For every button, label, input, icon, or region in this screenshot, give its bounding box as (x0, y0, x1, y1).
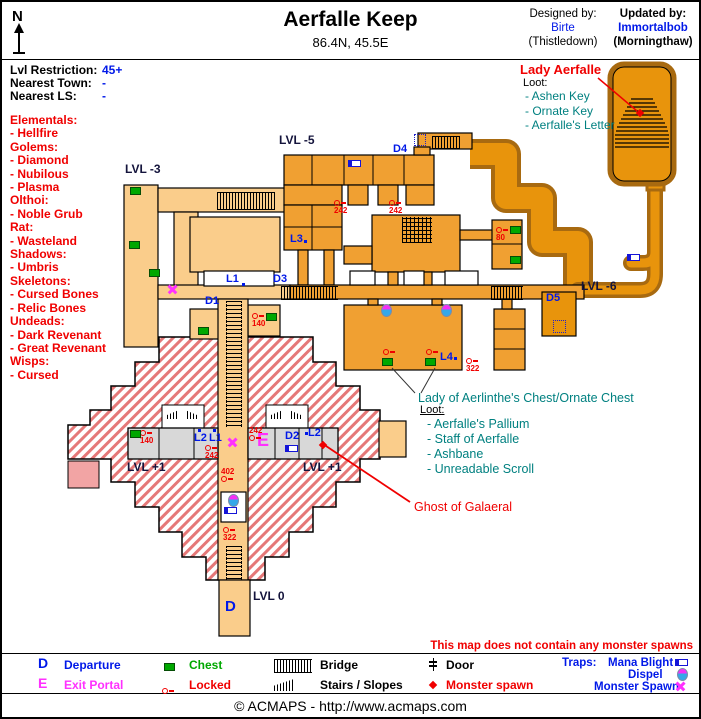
legend-locked-label: Locked (189, 678, 231, 692)
lady-loot-list: - Ashen Key - Ornate Key - Aerfalle's Le… (525, 89, 615, 133)
dispel-trap-icon (228, 494, 239, 507)
bridge-east-icon (491, 286, 523, 300)
legend-departure-key: D (38, 655, 48, 671)
chest-icon (266, 313, 277, 321)
main-corridor-west (158, 285, 290, 299)
lock-322-shaft: 322 (223, 526, 236, 541)
hall-east-block (379, 421, 406, 457)
copyright-footer[interactable]: © ACMAPS - http://www.acmaps.com (234, 698, 467, 714)
stub-c (388, 272, 398, 285)
mana-blight-trap-icon (348, 160, 361, 167)
east-room-column (494, 309, 525, 370)
marker-l3[interactable]: L3 (290, 233, 303, 245)
stairs-shaft-upper-icon (226, 301, 242, 427)
lvl5-row2-b (348, 185, 368, 205)
key-icon (162, 687, 174, 695)
lock-ornate-chest-a (383, 348, 395, 356)
key-icon (389, 199, 401, 207)
key-icon (252, 312, 264, 320)
label-lvl-1-left: LVL +1 (127, 460, 166, 474)
monster-spawn-trap-icon (676, 682, 685, 691)
lady-aerfalle-title: Lady Aerfalle (520, 62, 601, 77)
label-lvl-6: LVL -6 (581, 279, 617, 293)
lvl6-corridor-inner (470, 154, 578, 294)
legend-stairs-label: Stairs / Slopes (320, 678, 403, 692)
lvl3-strip-room (124, 185, 158, 347)
bridge-d4-icon (432, 136, 460, 149)
dispel-trap-icon (677, 668, 688, 681)
d4-pad-icon (414, 134, 426, 146)
label-lvl-5: LVL -5 (279, 133, 315, 147)
chest-icon (130, 430, 141, 438)
legend-dispel-label: Dispel (628, 669, 663, 681)
key-icon (140, 429, 152, 437)
marker-d1[interactable]: D1 (205, 295, 219, 307)
legend-top-border (2, 653, 699, 654)
lvl5-stub-b (324, 250, 334, 285)
dispel-trap-icon (441, 304, 452, 317)
lady-loot-label: Loot: (523, 77, 547, 89)
acmaps-page: N Aerfalle Keep 86.4N, 45.5E Designed by… (0, 0, 701, 719)
white-room-b (404, 271, 424, 285)
marker-d3[interactable]: D3 (273, 273, 287, 285)
lever-dot (242, 283, 245, 286)
chest-icon (510, 226, 521, 234)
lvl5-stub-a (298, 250, 308, 285)
d4-stub (414, 147, 430, 155)
marker-hall-l2[interactable]: L2 (194, 432, 207, 444)
lever-dot (213, 429, 216, 432)
stairs-shaft-lower-icon (226, 546, 242, 580)
key-icon (466, 357, 478, 365)
legend-exit-key: E (38, 675, 47, 691)
label-lvl-1-right: LVL +1 (303, 460, 342, 474)
chest-icon (129, 241, 140, 249)
l1-room (204, 271, 274, 286)
bridge-mid-icon (281, 286, 338, 300)
marker-l1[interactable]: L1 (226, 273, 239, 285)
stub-e (368, 299, 378, 305)
stub-g (502, 299, 512, 309)
stub-f (432, 299, 442, 305)
key-icon (334, 199, 346, 207)
white-room-c (445, 271, 478, 285)
lvl5-row2-d (406, 185, 434, 205)
lock-242-hall-bottom: 242 (205, 444, 218, 459)
key-icon (496, 226, 508, 234)
lady-aerfalle-room (610, 64, 674, 184)
legend-bottom-border (2, 693, 699, 694)
lock-242-hall-top: 242 (249, 427, 262, 442)
mana-blight-trap-icon (675, 659, 688, 666)
marker-d2[interactable]: D2 (285, 430, 299, 442)
monster-spawn-trap-icon (228, 438, 237, 447)
marker-hall-l1[interactable]: L1 (209, 432, 222, 444)
monster-spawn-trap-icon (168, 285, 177, 294)
key-icon (205, 444, 217, 452)
lever-dot (198, 429, 201, 432)
pink-annex-room (68, 461, 99, 488)
chest-icon (510, 256, 521, 264)
lock-80: 80 (496, 226, 508, 241)
ghost-of-galaeral-label: Ghost of Galaeral (414, 500, 512, 514)
mana-blight-trap-icon (627, 254, 640, 261)
key-icon (426, 348, 438, 356)
ornate-chest-title: Lady of Aerlinthe's Chest/Ornate Chest (418, 391, 634, 405)
marker-l4[interactable]: L4 (440, 351, 453, 363)
marker-d5[interactable]: D5 (546, 292, 560, 304)
lever-dot (304, 240, 307, 243)
legend-door-label: Door (446, 658, 474, 672)
chest-icon (198, 327, 209, 335)
lock-402: 402 (221, 468, 234, 483)
chest-loot-label: Loot: (420, 404, 444, 416)
bridge-icon (274, 659, 312, 673)
portcullis-icon (402, 217, 432, 243)
bridge-west-icon (217, 192, 275, 210)
lvl3-big-room (190, 217, 280, 272)
lock-322-east: 322 (466, 357, 479, 372)
legend-traps-label: Traps: (562, 657, 597, 669)
lever-dot (305, 432, 308, 435)
d5-pad-icon (553, 320, 566, 333)
no-spawns-note: This map does not contain any monster sp… (430, 640, 693, 652)
legend-mana-blight-label: Mana Blight (608, 657, 673, 669)
key-icon (249, 434, 261, 442)
marker-departure[interactable]: D (225, 598, 236, 615)
lock-242-a: 242 (334, 199, 347, 214)
white-room-a (350, 271, 375, 285)
key-icon (383, 348, 395, 356)
mana-blight-trap-icon (224, 507, 237, 514)
lock-ornate-chest-b (426, 348, 438, 356)
key-icon (223, 526, 235, 534)
legend-departure-label: Departure (64, 658, 121, 672)
marker-d4[interactable]: D4 (393, 143, 407, 155)
chest-loot-list: - Aerfalle's Pallium - Staff of Aerfalle… (427, 417, 534, 477)
chest-icon (425, 358, 436, 366)
door-icon (428, 658, 438, 671)
legend-monster-spawn-label: Monster spawn (446, 678, 533, 692)
lvl5-east-connector (460, 230, 494, 240)
chest-icon (130, 187, 141, 195)
dispel-trap-icon (381, 304, 392, 317)
marker-hall-l2-right[interactable]: L2 (308, 427, 321, 439)
label-lvl-3: LVL -3 (125, 162, 161, 176)
lvl6-corridor-outer (470, 154, 578, 294)
chest-icon (382, 358, 393, 366)
chest-icon (149, 269, 160, 277)
label-lvl-0: LVL 0 (253, 589, 285, 603)
lock-140-room: 140 (252, 312, 265, 327)
chest-icon (164, 663, 175, 671)
lock-242-b: 242 (389, 199, 402, 214)
mana-blight-trap-icon (285, 445, 298, 452)
legend-monster-spawn-trap-label: Monster Spawn (594, 681, 679, 693)
legend-bridge-label: Bridge (320, 658, 358, 672)
legend-exit-label: Exit Portal (64, 678, 123, 692)
legend-chest-label: Chest (189, 658, 222, 672)
key-icon (221, 475, 233, 483)
lever-dot (454, 357, 457, 360)
lvl5-annex (344, 246, 372, 264)
lock-140-hall: 140 (140, 429, 153, 444)
